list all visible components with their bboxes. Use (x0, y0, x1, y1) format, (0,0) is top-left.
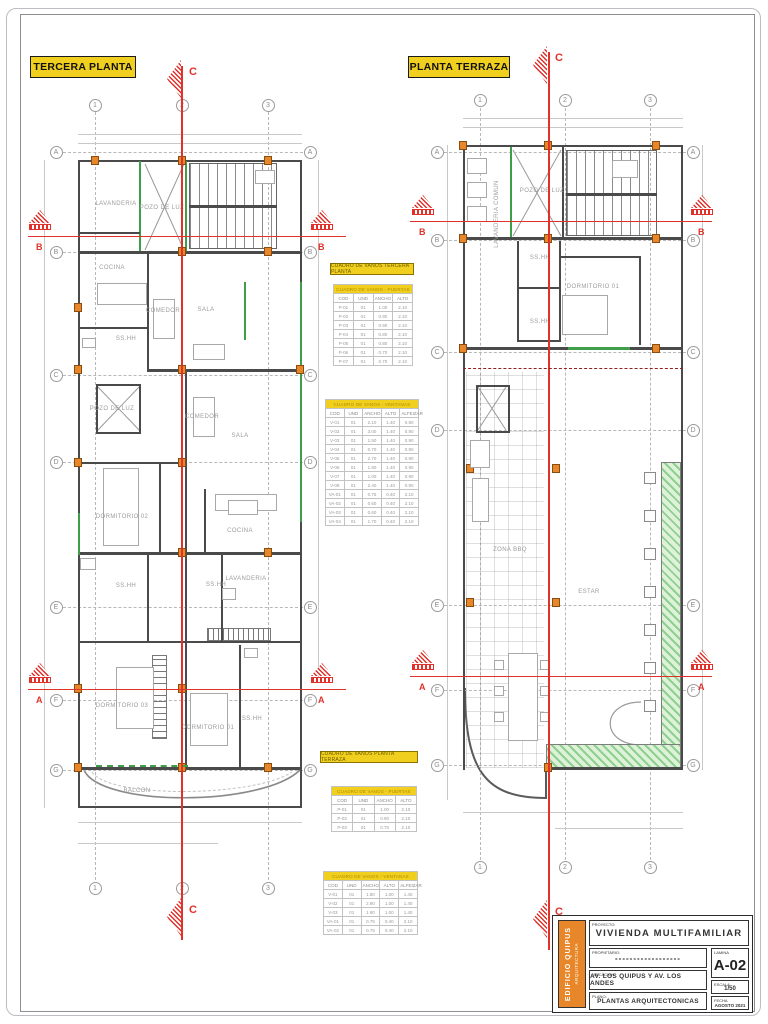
wall (476, 431, 510, 433)
titleblock-logo-strip: EDIFICIO QUIPUS ARQUITECTURA (558, 920, 586, 1008)
table-header-cell: COD (334, 294, 354, 303)
table-cell: 0.90 (400, 445, 419, 454)
grid-bubble: D (50, 456, 63, 469)
table-cell: V-02 (326, 427, 345, 436)
table-cell: 0.40 (381, 508, 400, 517)
table-header-cell: ALFEIZAR (400, 409, 419, 418)
table-row: V-02012.901.001.40 (324, 899, 418, 908)
table-cell: 2.10 (395, 814, 416, 823)
room-label: SS.HH (242, 716, 262, 722)
grid-bubble: 3 (644, 94, 657, 107)
table-cell: 0.40 (381, 490, 400, 499)
table-header-cell: COD (332, 796, 353, 805)
table-row: P-02010.902.10 (334, 312, 413, 321)
grid-bubble: D (304, 456, 317, 469)
ubicacion-value: AV. LOS QUIPUS Y AV. LOS ANDES (590, 971, 706, 989)
table-cell: 0.90 (373, 321, 393, 330)
table-cell: 1.40 (381, 481, 400, 490)
section-arrow-icon (311, 677, 333, 683)
table-header-cell: UND (344, 409, 363, 418)
wall (476, 385, 510, 387)
table-cell: 1.40 (399, 890, 418, 899)
dimension-line (447, 145, 448, 800)
table-cell: 2.10 (395, 805, 416, 814)
table-cell: 01 (353, 321, 373, 330)
table-cell: VA-02 (324, 926, 343, 935)
grid-bubble: F (304, 694, 317, 707)
room-label: COCINA (227, 528, 253, 534)
grid-bubble: D (687, 424, 700, 437)
table-cell: VA-03 (326, 508, 345, 517)
table-cell: 01 (353, 312, 373, 321)
table-cell: VA-01 (326, 490, 345, 499)
logo-subtext: ARQUITECTURA (574, 943, 579, 985)
grid-bubble: E (431, 599, 444, 612)
table-row: V-04010.701.400.90 (326, 445, 419, 454)
table-row: V-08012.401.400.90 (326, 481, 419, 490)
grid-bubble: A (687, 146, 700, 159)
table-cell: 2.10 (399, 917, 418, 926)
table-cell: 2.10 (393, 348, 413, 357)
table-row: V-06011.801.400.90 (326, 463, 419, 472)
room-label: DORMITORIO 01 (567, 284, 619, 290)
escala-value: 1/50 (712, 985, 748, 993)
table-cell: 2.10 (393, 357, 413, 366)
dimension-line (463, 812, 683, 813)
table-cell: 0.70 (373, 348, 393, 357)
table-cell: 0.90 (373, 312, 393, 321)
room-label: SS.HH (116, 336, 136, 342)
dimension-line (78, 843, 218, 844)
grid-bubble: 1 (89, 99, 102, 112)
wall (517, 241, 519, 342)
furniture (255, 170, 275, 184)
table-cell: 0.90 (400, 472, 419, 481)
table-header-cell: ANCHO (374, 796, 395, 805)
room-label: SS.HH (206, 582, 226, 588)
terrace-seat (644, 472, 656, 484)
wall (568, 347, 630, 350)
grid-bubble: F (50, 694, 63, 707)
closet (152, 655, 167, 739)
table-cell: 01 (342, 890, 361, 899)
dimension-line (44, 160, 45, 808)
grid-bubble: 2 (559, 94, 572, 107)
column-marker (459, 344, 467, 353)
table-cell: 0.70 (373, 357, 393, 366)
table-cell: 2.10 (400, 517, 419, 526)
table-cell: 0.40 (381, 517, 400, 526)
table-cell: 1.40 (381, 445, 400, 454)
section-marker-icon (691, 195, 713, 215)
grid-bubble: G (304, 764, 317, 777)
table-cell: 2.10 (400, 508, 419, 517)
grid-bubble: E (687, 599, 700, 612)
room-label: DORMITORIO 03 (96, 703, 148, 709)
room-label: POZO DE LUZ (140, 205, 184, 211)
table-cell: P-05 (334, 339, 354, 348)
table-cell: V-03 (324, 908, 343, 917)
table-banner: CUADRO DE VANOS - PUERTAS (334, 285, 413, 294)
section-marker-icon (412, 195, 434, 215)
grid-bubble: E (50, 601, 63, 614)
vanos-table-terraza-ventanas: CUADRO DE VANOS - VENTANASCODUNDANCHOALT… (323, 871, 418, 935)
table-row: VA-01010.750.402.10 (326, 490, 419, 499)
table-cell: 1.00 (380, 908, 399, 917)
table-cell: V-02 (324, 899, 343, 908)
table-row: V-07011.001.400.90 (326, 472, 419, 481)
table-cell: 01 (344, 454, 363, 463)
furniture (467, 182, 487, 198)
column-marker (264, 548, 272, 557)
room-label: DORMITORIO 02 (96, 514, 148, 520)
table-cell: V-08 (326, 481, 345, 490)
section-line-a (28, 689, 346, 690)
section-letter: C (189, 66, 197, 78)
table-cell: P-07 (334, 357, 354, 366)
wall (476, 385, 478, 433)
furniture (97, 283, 147, 305)
table-cell: 0.75 (363, 490, 382, 499)
dimension-line (463, 127, 683, 128)
table-cell: 0.60 (363, 508, 382, 517)
section-marker-icon (691, 650, 713, 670)
wall (78, 327, 148, 329)
section-letter: A (419, 682, 426, 692)
table-cell: 1.80 (361, 890, 380, 899)
plan-title-tercera: TERCERA PLANTA (30, 56, 136, 78)
table-cell: 2.10 (393, 303, 413, 312)
furniture (467, 206, 487, 222)
table-cell: 2.10 (400, 490, 419, 499)
room-label: COMEDOR (185, 414, 219, 420)
section-marker-icon (311, 210, 333, 230)
titleblock-propietario: PROPIETARIO: ------------------ (589, 948, 707, 968)
titleblock-proyecto: PROYECTO: VIVIENDA MULTIFAMILIAR (589, 920, 749, 946)
section-marker-icon (29, 210, 51, 230)
section-line-a (410, 676, 712, 677)
titleblock-ubicacion: UBICACION: AV. LOS QUIPUS Y AV. LOS ANDE… (589, 970, 707, 990)
wall (147, 369, 304, 372)
table-cell: P-02 (332, 814, 353, 823)
table-cell: 01 (344, 436, 363, 445)
table-cell: V-07 (326, 472, 345, 481)
furniture (472, 478, 489, 522)
section-arrow-icon (311, 210, 333, 223)
table-cell: 1.40 (381, 472, 400, 481)
furniture (82, 338, 96, 348)
table-row: P-02010.902.10 (332, 814, 417, 823)
table-row: P-06010.702.10 (334, 348, 413, 357)
room-label: SALA (232, 433, 249, 439)
wall (300, 282, 302, 522)
table-cell: 0.90 (400, 454, 419, 463)
terrace-seat (644, 624, 656, 636)
table-header-cell: ALTO (381, 409, 400, 418)
room-label: SS.HH (116, 583, 136, 589)
table-cell: 0.60 (363, 499, 382, 508)
table-header-cell: ALTO (393, 294, 413, 303)
table-row: VA-01010.750.402.10 (324, 917, 418, 926)
table-cell: P-02 (334, 312, 354, 321)
table-cell: 1.40 (381, 436, 400, 445)
grid-bubble: C (431, 346, 444, 359)
grid-line-horizontal (63, 152, 303, 153)
titleblock-fecha: FECHA AGOSTO 2021 (711, 996, 749, 1010)
furniture (193, 344, 225, 360)
wall (78, 232, 140, 234)
table-row: P-01011.002.10 (332, 805, 417, 814)
table-row: V-03011.901.001.40 (324, 908, 418, 917)
section-arrow-icon (691, 195, 713, 208)
furniture (494, 712, 504, 722)
table-row: P-07010.702.10 (334, 357, 413, 366)
terrace-seat (644, 700, 656, 712)
column-marker (296, 365, 304, 374)
column-marker (74, 458, 82, 467)
dimension-line (555, 828, 683, 829)
table-header-cell: ANCHO (363, 409, 382, 418)
section-line-b (28, 236, 346, 237)
table-cell: V-03 (326, 436, 345, 445)
terrace-seat (644, 586, 656, 598)
grid-bubble: E (304, 601, 317, 614)
furniture (244, 648, 258, 658)
propietario-value: ------------------ (590, 949, 706, 967)
section-marker-icon (29, 663, 51, 683)
table-cell: 1.00 (374, 805, 395, 814)
titleblock-plano: PLANO: PLANTAS ARQUITECTONICAS (589, 992, 707, 1010)
section-arrow-icon (311, 663, 333, 676)
table-cell: 01 (353, 357, 373, 366)
dimension-line (463, 118, 683, 119)
furniture (508, 653, 538, 741)
table-cell: 01 (344, 490, 363, 499)
table-cell: P-04 (334, 330, 354, 339)
wall (510, 147, 512, 239)
table-cell: 01 (344, 463, 363, 472)
section-letter: B (318, 242, 325, 252)
table-cell: 0.40 (380, 917, 399, 926)
stair-landing (566, 193, 657, 196)
table-header-cell: UND (353, 796, 374, 805)
column-marker (652, 344, 660, 353)
section-line-b (410, 221, 712, 222)
grid-bubble: B (304, 246, 317, 259)
table-row: P-03010.902.10 (334, 321, 413, 330)
table-cell: 1.40 (381, 454, 400, 463)
furniture (494, 686, 504, 696)
table-row: VA-04011.700.402.10 (326, 517, 419, 526)
furniture (80, 558, 96, 570)
closet (207, 628, 271, 641)
grid-bubble: B (50, 246, 63, 259)
section-arrow-icon (412, 650, 434, 663)
section-arrow-icon (412, 664, 434, 670)
table-cell: 01 (353, 330, 373, 339)
table-cell: 01 (344, 499, 363, 508)
section-arrow-icon (691, 650, 713, 663)
table-header-cell: UND (342, 881, 361, 890)
grid-bubble: 1 (89, 882, 102, 895)
table-cell: 01 (353, 823, 374, 832)
table-cell: 0.70 (374, 823, 395, 832)
wall (96, 384, 141, 386)
table-cell: 2.10 (393, 321, 413, 330)
grid-bubble: 3 (644, 861, 657, 874)
wall (204, 489, 206, 555)
terraza-planter-bottom (546, 744, 681, 768)
plan-title-terraza: PLANTA TERRAZA (408, 56, 510, 78)
section-arrow-icon (29, 677, 51, 683)
column-marker (552, 598, 560, 607)
table-cell: 0.90 (400, 481, 419, 490)
furniture (228, 500, 258, 515)
section-marker-icon (412, 650, 434, 670)
table-cell: 01 (344, 472, 363, 481)
table-cell: 2.40 (363, 481, 382, 490)
table-cell: 01 (344, 427, 363, 436)
section-arrow-icon (691, 664, 713, 670)
section-arrow-icon (311, 224, 333, 230)
table-cell: 01 (344, 418, 363, 427)
drawing-sheet: TERCERA PLANTA PLANTA TERRAZA CUADRO DE … (0, 0, 768, 1024)
table-cell: 01 (353, 805, 374, 814)
table-cell: P-06 (334, 348, 354, 357)
table-header-cell: ALTO (395, 796, 416, 805)
column-marker (264, 763, 272, 772)
grid-bubble: B (431, 234, 444, 247)
wall (78, 513, 80, 555)
room-label: DORMITORIO 01 (182, 725, 234, 731)
table-cell: 01 (342, 899, 361, 908)
section-letter: A (36, 695, 43, 705)
terrace-seat (644, 662, 656, 674)
dimension-line (78, 822, 302, 823)
table-cell: 1.00 (380, 899, 399, 908)
table-cell: P-01 (334, 303, 354, 312)
table-row: P-03010.702.10 (332, 823, 417, 832)
column-marker (264, 156, 272, 165)
room-label: ESTAR (578, 589, 600, 595)
wall (147, 554, 149, 642)
table-cell: 0.90 (374, 814, 395, 823)
table-banner: CUADRO DE VANOS - PUERTAS (332, 787, 417, 796)
table-row: V-03011.501.400.90 (326, 436, 419, 445)
grid-bubble: C (50, 369, 63, 382)
column-marker (74, 763, 82, 772)
column-marker (459, 141, 467, 150)
grid-bubble: 1 (474, 861, 487, 874)
table-header-cell: ANCHO (373, 294, 393, 303)
plano-value: PLANTAS ARQUITECTONICAS (590, 993, 706, 1009)
wall (185, 161, 187, 253)
table-header-cell: COD (324, 881, 343, 890)
table-cell: V-05 (326, 454, 345, 463)
wall (508, 385, 510, 433)
table-cell: 01 (344, 445, 363, 454)
section-marker-icon (311, 663, 333, 683)
section-line-c (181, 66, 183, 940)
furniture (467, 158, 487, 174)
vanos-title-tercera: CUADRO DE VANOS TERCERA PLANTA (330, 263, 414, 275)
table-cell: P-01 (332, 805, 353, 814)
grid-bubble: 3 (262, 882, 275, 895)
furniture (470, 440, 490, 468)
furniture (612, 160, 638, 178)
logo-text: EDIFICIO QUIPUS (565, 927, 572, 1001)
proyecto-value: VIVIENDA MULTIFAMILIAR (590, 921, 748, 945)
table-row: P-01011.002.10 (334, 303, 413, 312)
table-cell: VA-04 (326, 517, 345, 526)
column-marker (91, 156, 99, 165)
wall (561, 256, 641, 258)
table-cell: V-01 (324, 890, 343, 899)
column-marker (74, 365, 82, 374)
dimension-line (78, 134, 302, 135)
wall (244, 282, 246, 340)
vanos-table-tercera-puertas: CUADRO DE VANOS - PUERTASCODUNDANCHOALTO… (333, 284, 413, 366)
table-header-cell: ALFEIZAR (399, 881, 418, 890)
wall (159, 462, 161, 555)
section-arrow-icon (29, 210, 51, 223)
table-banner: CUADRO DE VANOS - VENTANAS (324, 872, 418, 881)
table-row: VA-02010.750.402.10 (324, 926, 418, 935)
stair-landing (189, 205, 277, 208)
table-cell: VA-01 (324, 917, 343, 926)
grid-bubble: G (431, 759, 444, 772)
column-marker (74, 303, 82, 312)
column-marker (466, 598, 474, 607)
table-cell: 0.90 (400, 427, 419, 436)
table-header-cell: UND (353, 294, 373, 303)
column-marker (652, 234, 660, 243)
section-letter: C (555, 906, 563, 918)
table-cell: P-03 (334, 321, 354, 330)
terrace-seat (644, 510, 656, 522)
table-cell: 1.00 (380, 890, 399, 899)
table-cell: 2.10 (395, 823, 416, 832)
section-arrow-icon (29, 224, 51, 230)
table-cell: 1.70 (363, 517, 382, 526)
room-label: POZO DE LUZ (90, 406, 134, 412)
grid-bubble: A (431, 146, 444, 159)
wall (517, 340, 561, 342)
grid-bubble: 3 (262, 99, 275, 112)
table-row: P-04010.802.10 (334, 330, 413, 339)
table-cell: 0.90 (400, 463, 419, 472)
furniture (494, 660, 504, 670)
room-label: ZONA BBQ (493, 547, 527, 553)
grid-bubble: C (304, 369, 317, 382)
table-row: VA-03010.600.402.10 (326, 508, 419, 517)
table-cell: 1.80 (363, 463, 382, 472)
section-letter: A (318, 695, 325, 705)
furniture (103, 468, 139, 546)
vanos-title-terraza: CUADRO DE VANOS PLANTA TERRAZA (320, 751, 418, 763)
section-arrow-icon (29, 663, 51, 676)
titleblock-escala: ESCALA 1/50 (711, 980, 749, 994)
table-cell: 01 (344, 517, 363, 526)
table-cell: 1.40 (381, 427, 400, 436)
dimension-line (318, 160, 319, 680)
column-marker (652, 141, 660, 150)
wall (78, 462, 186, 464)
table-cell: 01 (344, 481, 363, 490)
table-cell: 01 (344, 508, 363, 517)
table-cell: V-01 (326, 418, 345, 427)
room-label: LAVANDERIA (95, 201, 136, 207)
